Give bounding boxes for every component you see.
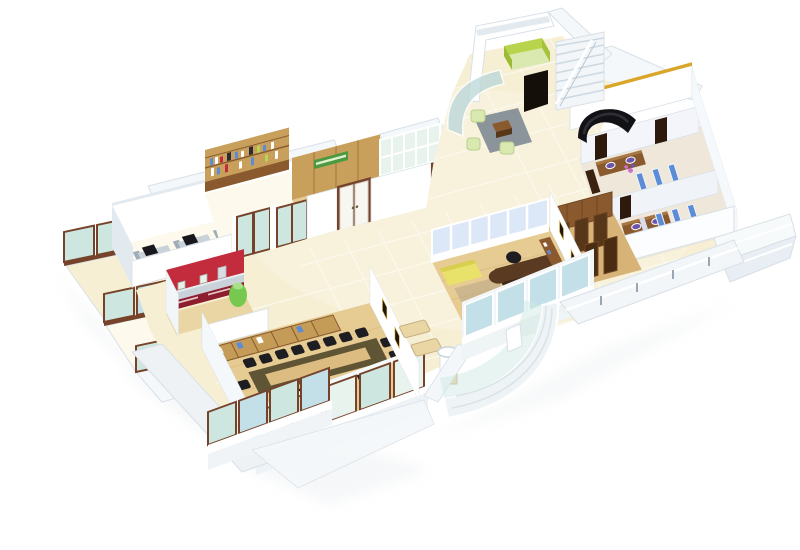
counter-appliance [200,274,207,284]
door-panel [355,181,368,226]
glass-door [292,200,307,243]
jug-top [233,283,243,290]
floorplan-render-stage [0,0,800,550]
wardrobe [604,236,617,273]
doorway-gap [595,133,607,160]
green-armchair [471,110,485,122]
counter-appliance [178,281,185,290]
wall-pier [270,204,277,250]
doorway-gap [655,117,667,144]
door-panel [340,185,353,230]
staircase [556,32,604,110]
counter-appliance [218,266,226,279]
green-armchair [467,138,480,150]
glass-door [277,204,292,247]
glass-panel [64,226,94,262]
green-armchair [500,142,514,154]
floorplan-svg [0,0,800,550]
glass-panel [104,288,134,322]
doorway-gap [620,195,631,220]
glass-door [254,208,270,253]
